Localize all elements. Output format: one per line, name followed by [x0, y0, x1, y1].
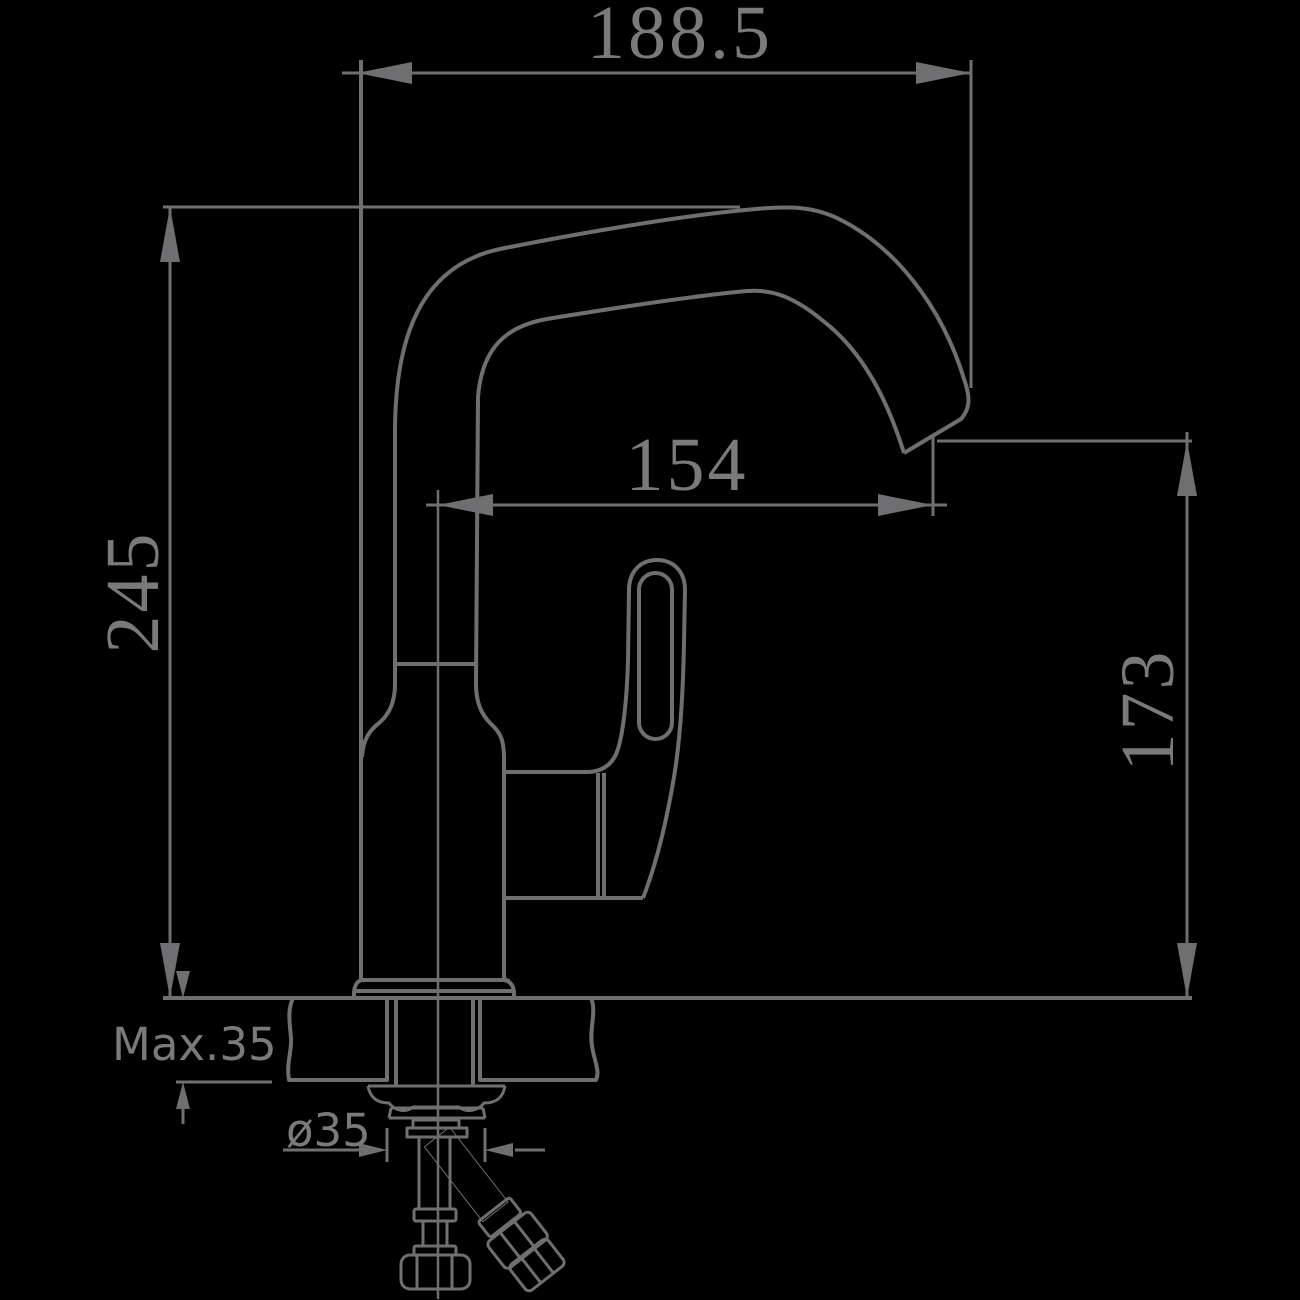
arrow-up-icon — [160, 207, 180, 262]
dimension-label-spout-reach: 154 — [626, 423, 749, 507]
body-right-edge — [504, 757, 510, 981]
handle-slot — [639, 573, 672, 739]
arrow-down-icon — [160, 943, 180, 998]
dimension-overall-width: 188.5 — [342, 0, 971, 388]
counter-block-right — [480, 998, 597, 1080]
dimension-label-spout-height: 173 — [1106, 649, 1190, 772]
faucet-dimension-drawing: 188.5 245 154 173 Max.35 — [0, 0, 1300, 1300]
dimension-label-counter-thickness: Max.35 — [112, 1018, 277, 1071]
arrow-down-icon — [176, 971, 190, 998]
hose-diagonal-hex-lower — [508, 1237, 566, 1293]
arrow-right-icon — [916, 62, 971, 84]
dimension-label-hole-diameter: ø35 — [286, 1104, 371, 1157]
spout-inner-contour — [476, 291, 904, 758]
arrow-left-icon — [438, 494, 493, 516]
dimension-counter-thickness: Max.35 — [112, 971, 277, 1124]
arrow-up-icon — [176, 1082, 190, 1109]
arrow-down-icon — [1177, 943, 1197, 998]
counter-block-left — [288, 998, 387, 1080]
dimension-spout-reach: 154 — [426, 423, 947, 516]
hose-end-nut — [401, 1255, 470, 1289]
hose-vertical-collar-upper — [414, 1209, 456, 1221]
dimension-label-overall-width: 188.5 — [587, 0, 773, 75]
base-flange — [354, 980, 514, 998]
dimension-label-overall-height: 245 — [91, 531, 175, 654]
dimension-spout-height: 173 — [937, 432, 1197, 998]
arrow-left-icon — [357, 62, 412, 84]
arrow-right-icon — [878, 494, 933, 516]
dimension-hole-diameter: ø35 — [283, 1104, 545, 1162]
dimension-overall-height: 245 — [91, 207, 740, 998]
countertop-section — [163, 998, 1192, 1080]
faucet-outline — [354, 60, 968, 1299]
arrow-up-icon — [1177, 441, 1197, 496]
arrow-left-icon — [485, 1143, 513, 1157]
